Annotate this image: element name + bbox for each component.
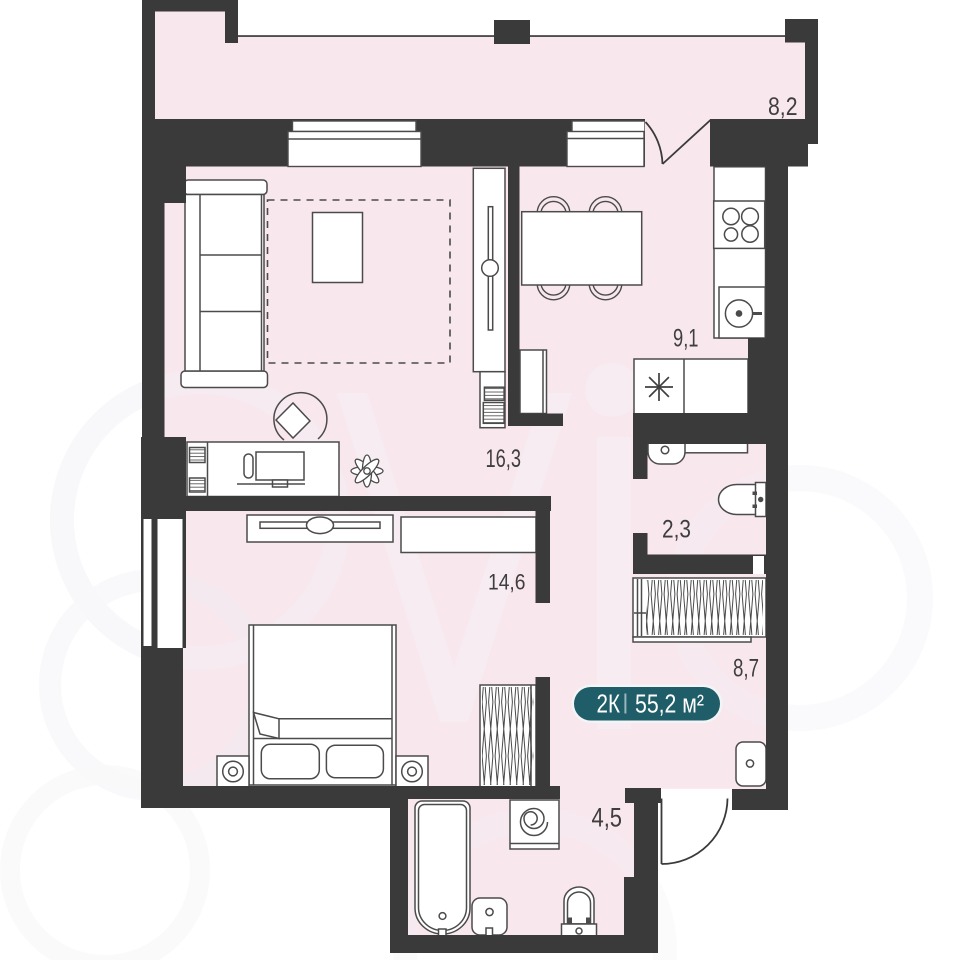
svg-text:2К: 2К	[597, 691, 621, 719]
svg-text:4,5: 4,5	[592, 803, 623, 833]
svg-text:55,2 м²: 55,2 м²	[635, 691, 704, 719]
svg-text:14,6: 14,6	[488, 570, 526, 595]
svg-text:16,3: 16,3	[486, 445, 522, 473]
svg-text:2,3: 2,3	[662, 515, 691, 543]
svg-text:8,7: 8,7	[733, 654, 759, 682]
svg-text:9,1: 9,1	[673, 324, 699, 352]
svg-text:8,2: 8,2	[768, 93, 798, 121]
